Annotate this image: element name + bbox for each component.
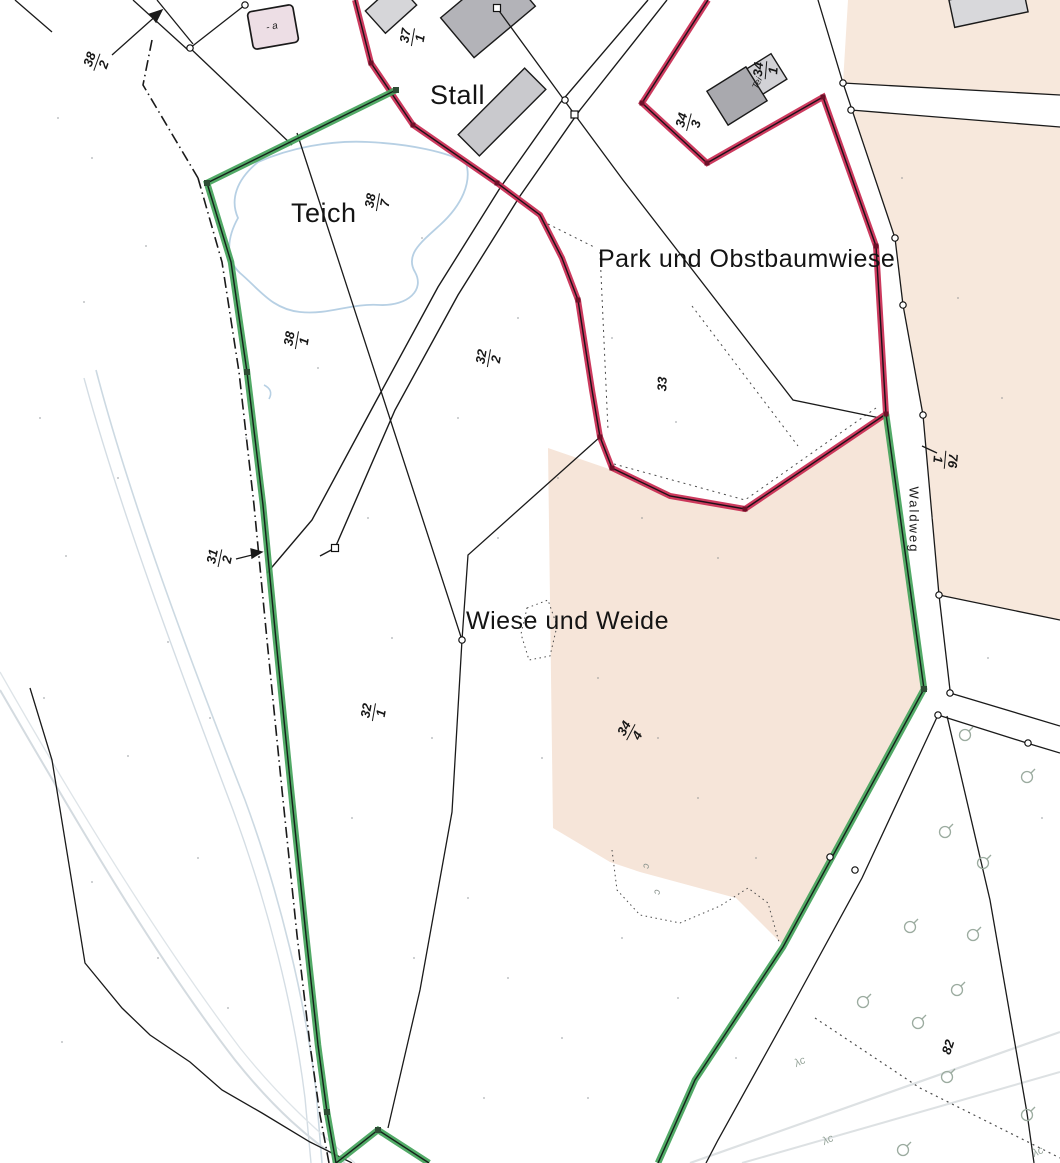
deciduous-tree-icon <box>952 982 966 996</box>
deciduous-tree-icon <box>942 1069 956 1083</box>
area-fill-parcel-34-4 <box>548 414 922 945</box>
parcel-line-stall-diagonal <box>497 8 880 418</box>
waldweg-bend-line-1 <box>950 693 1060 726</box>
deciduous-tree-icon <box>940 824 954 838</box>
faint-path-southeast-2 <box>742 1072 1060 1163</box>
green-boundary-blackline-west <box>207 90 429 1163</box>
deciduous-tree-icon <box>968 927 982 941</box>
parcel-line-south <box>388 640 462 1128</box>
arrow-38-2 <box>112 14 158 55</box>
label-teich: Teich <box>291 198 357 229</box>
green-boundary-band-west <box>207 90 429 1163</box>
building-top-large <box>441 0 536 58</box>
label-waldweg: Waldweg <box>907 487 922 554</box>
deciduous-tree-icon <box>960 727 974 741</box>
parcel-label-33: 33 <box>654 377 669 392</box>
label-wiese-und-weide: Wiese und Weide <box>466 607 669 636</box>
map-canvas <box>0 0 1060 1163</box>
deciduous-tree-icon <box>1022 769 1036 783</box>
deciduous-tree-icon <box>905 919 919 933</box>
parcel-label-76-1: 76 1 <box>930 450 961 471</box>
parcel-line-steep-right <box>947 716 1034 1163</box>
pond-detail <box>264 385 271 399</box>
stream-line-2 <box>84 378 311 1163</box>
label-stall: Stall <box>430 80 485 111</box>
deciduous-tree-icon <box>913 1015 927 1029</box>
deciduous-tree-icon <box>898 1142 912 1156</box>
tree-symbols <box>858 727 1036 1156</box>
label-park-und-obstbaumwiese: Park und Obstbaumwiese <box>598 245 895 274</box>
cadastral-map: Stall Teich Park und Obstbaumwiese Wiese… <box>0 0 1060 1163</box>
deciduous-tree-icon <box>858 994 872 1008</box>
red-vertex-squares <box>369 61 889 512</box>
faint-path-southeast-1 <box>690 1032 1060 1163</box>
